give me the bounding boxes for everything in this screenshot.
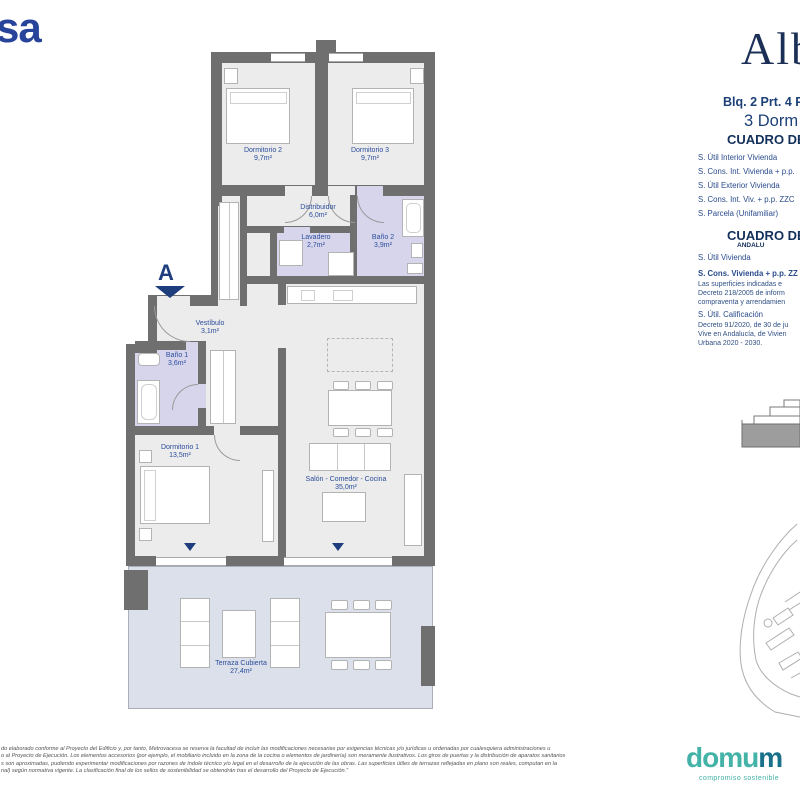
wall-segment (246, 276, 435, 284)
domum-logo-dark-part: m (758, 742, 782, 773)
kitchen-island-outline (327, 338, 393, 372)
wall-segment (240, 195, 247, 306)
door-opening (198, 384, 206, 408)
room-name: Dormitorio 1 (150, 444, 210, 452)
kitchen-counter (287, 286, 417, 304)
sideboard-furniture (404, 474, 422, 546)
room-label-dormitorio2: Dormitorio 2 9,7m² (233, 147, 293, 163)
room-area: 9,7m² (233, 155, 293, 163)
room-name: Dormitorio 2 (233, 147, 293, 155)
brochure-page: { "brand": { "metrovacesa_partial": "sa"… (0, 0, 800, 800)
room-area: 27,4m² (206, 668, 276, 676)
bathtub-icon (402, 199, 424, 237)
room-area: 9,7m² (340, 155, 400, 163)
wall-segment (392, 556, 435, 566)
chair-furniture (353, 600, 370, 610)
door-opening (285, 186, 312, 196)
bed-pillow (230, 92, 287, 104)
room-name: Distribuidor (288, 204, 348, 212)
room-label-dormitorio1: Dormitorio 1 13,5m² (150, 444, 210, 460)
coffee-table-furniture (322, 492, 366, 522)
bathtub-basin (141, 384, 157, 420)
bathtub-basin (406, 203, 421, 233)
wall-segment (211, 195, 218, 306)
lounger-line (181, 645, 209, 646)
room-label-distribuidor: Distribuidor 6,0m² (288, 204, 348, 220)
lounger-line (271, 621, 299, 622)
kitchen-sink (301, 290, 315, 301)
chair-furniture (377, 381, 393, 390)
room-label-dormitorio3: Dormitorio 3 9,7m² (340, 147, 400, 163)
lounger-furniture (180, 598, 210, 668)
washer-furniture (328, 252, 354, 276)
nightstand-furniture (139, 528, 152, 541)
sofa-cushion-line (337, 444, 338, 470)
wall-segment (315, 60, 328, 187)
toilet-icon (407, 263, 423, 274)
lounger-line (271, 645, 299, 646)
bed-furniture (140, 466, 210, 524)
chair-furniture (333, 428, 349, 437)
closet-furniture (410, 68, 424, 84)
window-marker-icon (184, 543, 196, 551)
room-area: 35,0m² (300, 484, 392, 492)
door-opening (214, 427, 240, 435)
kitchen-hob (333, 290, 353, 301)
room-label-bano2: Baño 2 3,9m² (353, 234, 413, 250)
room-name: Lavadero (286, 234, 346, 242)
wall-segment (424, 52, 435, 566)
room-name: Baño 1 (149, 352, 205, 360)
terrace-table-furniture (222, 610, 256, 658)
room-label-salon: Salón - Comedor - Cocina 35,0m² (300, 476, 392, 492)
door-opening (284, 227, 310, 233)
wall-segment (126, 556, 156, 566)
room-name: Salón - Comedor - Cocina (300, 476, 392, 484)
wardrobe-divider-line (223, 351, 224, 423)
wardrobe-furniture (210, 350, 236, 424)
wardrobe-furniture (219, 202, 239, 300)
chair-furniture (355, 381, 371, 390)
room-area: 3,6m² (149, 360, 205, 368)
chair-furniture (331, 600, 348, 610)
room-area: 6,0m² (288, 212, 348, 220)
sofa-furniture (309, 443, 391, 471)
lounger-line (181, 621, 209, 622)
wall-segment (278, 348, 286, 557)
room-area: 13,5m² (150, 452, 210, 460)
bed-furniture (352, 88, 414, 144)
room-label-vestibulo: Vestíbulo 3,1m² (180, 320, 240, 336)
room-label-lavadero: Lavadero 2,7m² (286, 234, 346, 250)
chair-furniture (355, 428, 371, 437)
wall-segment (126, 344, 135, 566)
bed-furniture (226, 88, 290, 144)
room-label-bano1: Baño 1 3,6m² (149, 352, 205, 368)
window-opening (271, 53, 305, 62)
disclaimer-line: o al Proyecto de Ejecución. Los elemento… (1, 753, 565, 760)
window-opening (329, 53, 363, 62)
room-name: Vestíbulo (180, 320, 240, 328)
bathtub-icon (137, 380, 160, 424)
entrance-marker-letter: A (158, 260, 174, 286)
domum-logo-light-part: domu (686, 742, 758, 773)
outdoor-dining-table-furniture (325, 612, 391, 658)
domum-tagline: compromiso sostenible (699, 775, 779, 782)
room-name: Dormitorio 3 (340, 147, 400, 155)
floor-plan: A Dormitorio 2 9,7m² Dormitorio 3 9,7m² … (0, 0, 800, 800)
domum-logo: domum (686, 742, 782, 774)
wall-segment (226, 556, 284, 566)
chair-furniture (331, 660, 348, 670)
door-opening (357, 186, 383, 196)
terrace-pillar (421, 626, 435, 686)
glazed-door-opening (284, 557, 392, 566)
sliding-door-panel (262, 470, 274, 542)
sofa-cushion-line (364, 444, 365, 470)
chair-furniture (353, 660, 370, 670)
wall-segment (278, 284, 286, 305)
room-label-terraza: Terraza Cubierta 27,4m² (206, 660, 276, 676)
disclaimer-line: nal) según normativa vigente. La clasifi… (1, 768, 348, 775)
room-area: 3,9m² (353, 242, 413, 250)
chair-furniture (375, 660, 392, 670)
dining-table-furniture (328, 390, 392, 426)
chair-furniture (377, 428, 393, 437)
chair-furniture (375, 600, 392, 610)
entrance-arrow-icon (155, 286, 185, 298)
terrace-pillar (124, 570, 148, 610)
glazed-door-opening (156, 557, 226, 566)
room-area: 2,7m² (286, 242, 346, 250)
window-marker-icon (332, 543, 344, 551)
chair-furniture (333, 381, 349, 390)
room-name: Terraza Cubierta (206, 660, 276, 668)
closet-furniture (224, 68, 238, 84)
room-name: Baño 2 (353, 234, 413, 242)
lounger-furniture (270, 598, 300, 668)
wall-segment (126, 426, 214, 435)
wardrobe-divider-line (229, 203, 230, 299)
bed-pillow (144, 470, 156, 521)
wall-segment (211, 52, 222, 206)
room-area: 3,1m² (180, 328, 240, 336)
bed-pillow (356, 92, 411, 104)
